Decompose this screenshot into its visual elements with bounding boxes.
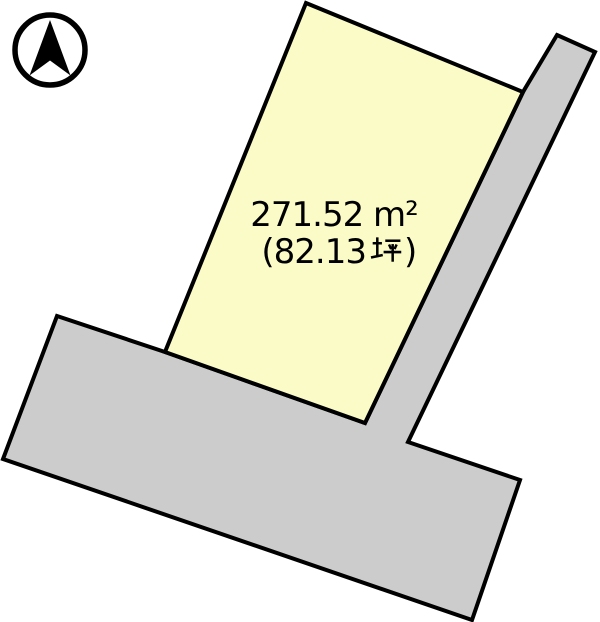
tsubo-label-prefix: (82.13	[261, 232, 366, 272]
plot-drawing: 271.52 m² (82.13 )	[0, 0, 600, 622]
parcel-area-sqm-label: 271.52 m²	[250, 195, 418, 235]
tsubo-label-suffix: )	[404, 232, 416, 272]
north-compass-icon	[15, 15, 85, 85]
land-plot-diagram: 271.52 m² (82.13 )	[0, 0, 600, 622]
